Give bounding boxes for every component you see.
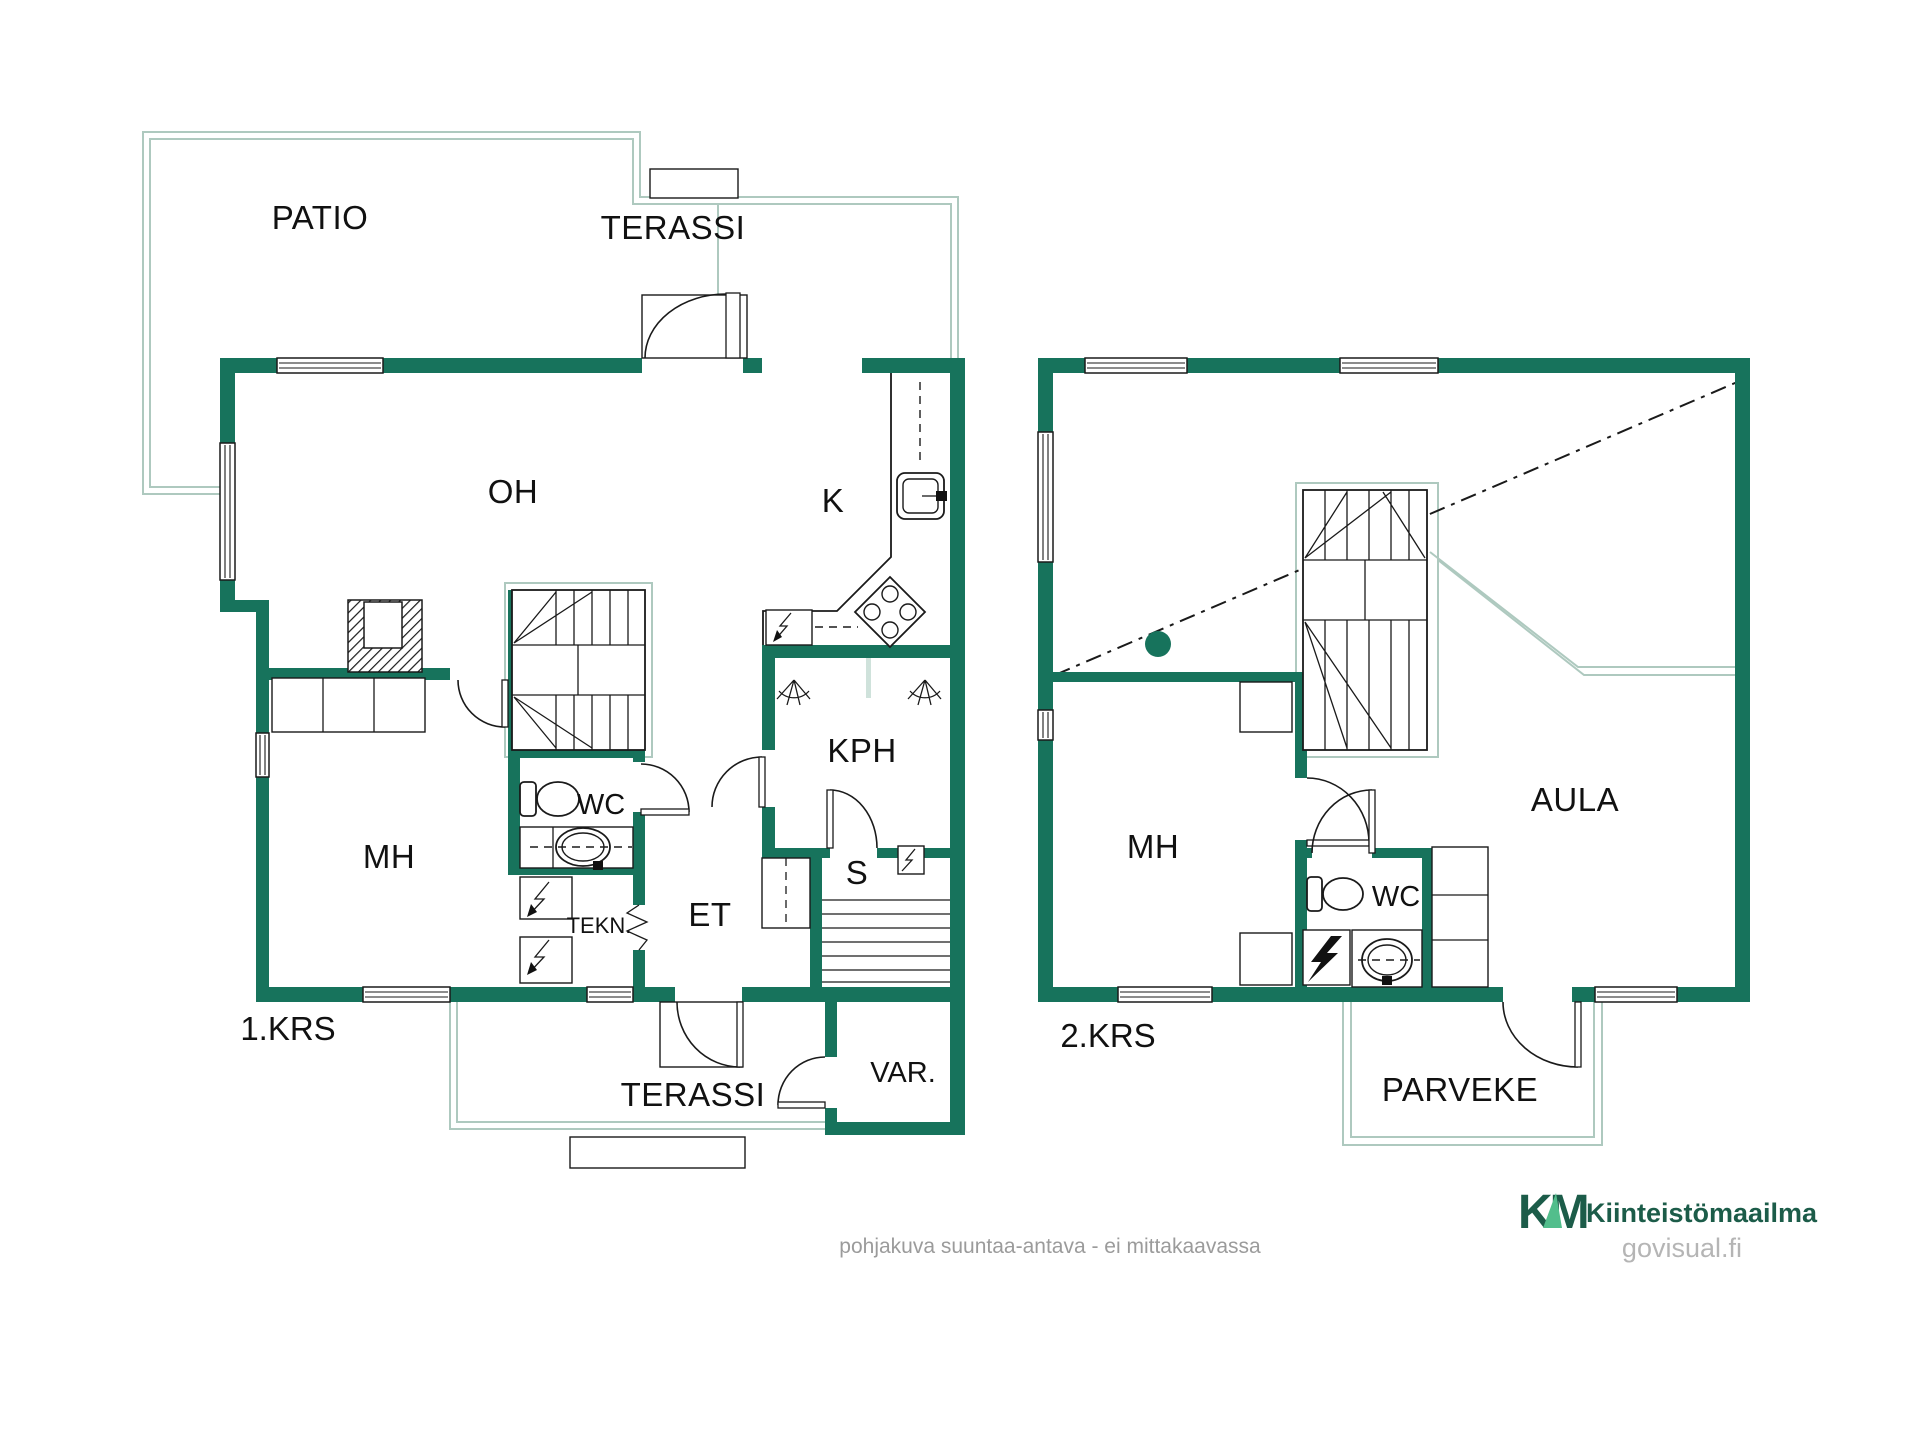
patio-outline-inner <box>150 139 951 487</box>
fridge-icon <box>766 610 812 645</box>
shower-icon <box>908 680 941 705</box>
km-logo: KM Kiinteistömaailma <box>1518 1186 1818 1239</box>
window <box>1038 432 1053 562</box>
water-heater-icon <box>520 877 572 919</box>
cabinet <box>1240 682 1292 732</box>
aula-ceiling-outline-inner <box>1430 552 1735 667</box>
window <box>363 987 450 1002</box>
website-text: govisual.fi <box>1622 1233 1742 1263</box>
room-label-parveke: PARVEKE <box>1382 1071 1538 1108</box>
door-leaf <box>726 293 740 358</box>
room-label-mh1: MH <box>363 838 415 875</box>
stove-icon <box>855 577 925 647</box>
window <box>1085 358 1187 373</box>
window <box>1038 710 1053 740</box>
staircase <box>512 590 645 750</box>
room-label-aula: AULA <box>1531 781 1619 818</box>
room-label-terassi-bottom: TERASSI <box>621 1076 766 1113</box>
chimney-dot <box>1145 631 1171 657</box>
vent-line <box>866 658 871 698</box>
door-leaf <box>778 1102 825 1108</box>
wardrobe <box>1432 847 1488 987</box>
door-leaf <box>1575 1002 1581 1067</box>
room-label-terassi-top: TERASSI <box>601 209 746 246</box>
door-arc <box>1503 1002 1578 1067</box>
door-leaf <box>827 790 833 848</box>
footer: pohjakuva suuntaa-antava - ei mittakaava… <box>839 1186 1818 1263</box>
room-label-wc1: WC <box>577 789 625 821</box>
door-leaf <box>502 680 508 727</box>
room-label-s: S <box>846 854 869 891</box>
door-leaf <box>641 809 689 815</box>
window <box>1595 987 1677 1002</box>
aula-ceiling-outline-outer <box>1438 560 1735 675</box>
disclaimer-text: pohjakuva suuntaa-antava - ei mittakaava… <box>839 1235 1261 1258</box>
door-leaf <box>1307 840 1369 846</box>
window <box>1118 987 1212 1002</box>
room-label-var: VAR. <box>870 1057 936 1089</box>
sauna-benches <box>822 900 950 982</box>
door-leaf <box>759 757 765 807</box>
room-label-mh2: MH <box>1127 828 1179 865</box>
sink-icon <box>1352 930 1422 987</box>
wardrobe <box>272 678 425 732</box>
sink-icon <box>897 473 947 519</box>
door-arc <box>641 764 689 812</box>
staircase <box>1303 490 1427 750</box>
door-leaf <box>737 1002 743 1067</box>
room-label-patio: PATIO <box>272 199 369 236</box>
door-leaf <box>1369 790 1375 853</box>
window <box>256 733 269 777</box>
toilet-icon <box>520 782 579 816</box>
terassi-step <box>570 1137 745 1168</box>
floor1-label: 1.KRS <box>240 1010 335 1047</box>
window <box>220 443 235 580</box>
electric-panel-icon <box>1303 930 1350 985</box>
door-arc <box>712 757 762 807</box>
patio-step <box>650 169 738 198</box>
window <box>587 987 633 1002</box>
et-door-landing <box>660 1002 742 1067</box>
window <box>277 358 383 373</box>
sauna-heater-icon <box>898 846 924 874</box>
room-label-kph: KPH <box>827 732 896 769</box>
cabinet <box>1240 933 1292 985</box>
floor1-plan: PATIO TERASSI OH K MH WC TEKN. ET KPH S … <box>143 132 965 1168</box>
room-label-k: K <box>822 482 845 519</box>
fireplace-icon <box>348 600 422 672</box>
floorplan-canvas: PATIO TERASSI OH K MH WC TEKN. ET KPH S … <box>0 0 1920 1440</box>
door-arc <box>458 680 505 727</box>
door-arc <box>778 1057 825 1105</box>
parveke-outline-inner <box>1351 1002 1594 1137</box>
window <box>1340 358 1438 373</box>
room-label-wc2: WC <box>1372 881 1420 913</box>
brand-name: Kiinteistömaailma <box>1586 1198 1818 1228</box>
floorplan-page: PATIO TERASSI OH K MH WC TEKN. ET KPH S … <box>0 0 1920 1440</box>
sink-icon <box>520 827 633 870</box>
door-arc <box>830 790 877 848</box>
floor2-label: 2.KRS <box>1060 1017 1155 1054</box>
shower-icon <box>777 680 810 705</box>
toilet-icon <box>1307 877 1363 911</box>
door-arc <box>1307 778 1369 843</box>
room-label-oh: OH <box>488 473 539 510</box>
room-label-et: ET <box>688 896 731 933</box>
floor2-plan: MH WC AULA PARVEKE 2.KRS <box>1038 358 1750 1145</box>
electric-unit-icon <box>520 937 572 983</box>
patio-outline-outer <box>143 132 958 494</box>
room-label-tekn: TEKN. <box>567 913 632 938</box>
closet <box>762 858 810 928</box>
